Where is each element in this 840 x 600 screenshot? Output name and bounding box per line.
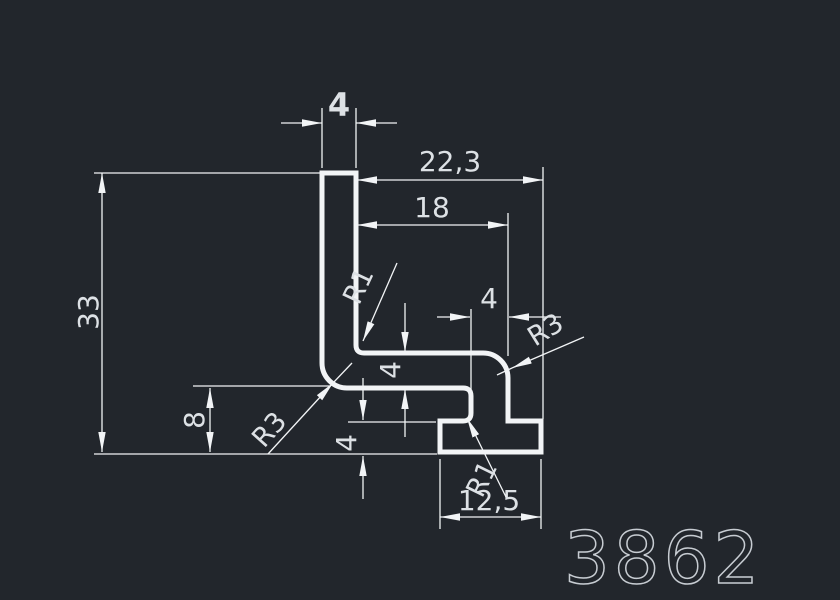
dim-neck-width-label: 4 [480,282,498,315]
cad-canvas: 4 22,3 18 33 8 4 4 4 [0,0,840,600]
part-number: 3862 [564,516,763,600]
dim-overall-height-label: 33 [72,294,105,330]
leader-r3-leg-label: R3 [246,406,293,453]
dim-overall-width [357,167,543,419]
dim-flange-height-label: 4 [330,434,363,452]
dim-top-width-label: 4 [328,86,350,124]
dim-overall-width-label: 22,3 [419,145,481,178]
leader-r1-leg-label: R1 [337,263,380,309]
profile-drawing: 4 22,3 18 33 8 4 4 4 [0,0,840,600]
dim-arm-thickness-label: 4 [374,361,407,379]
dim-foot-height-label: 8 [178,411,211,429]
dim-inner-width-label: 18 [414,191,450,224]
